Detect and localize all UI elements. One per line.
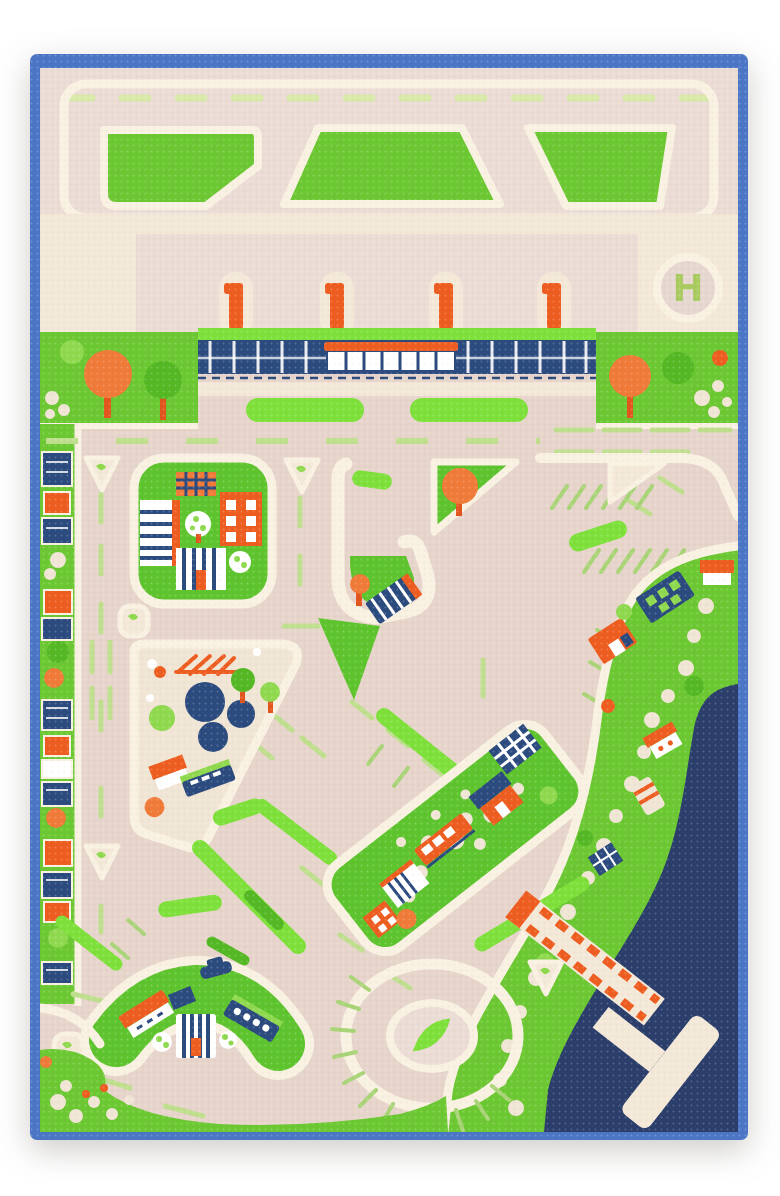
rug-illustration: H	[0, 0, 780, 1196]
play-rug: H	[30, 54, 748, 1140]
product-photo-play-rug: H	[0, 0, 780, 1196]
fabric-texture	[30, 54, 748, 1140]
